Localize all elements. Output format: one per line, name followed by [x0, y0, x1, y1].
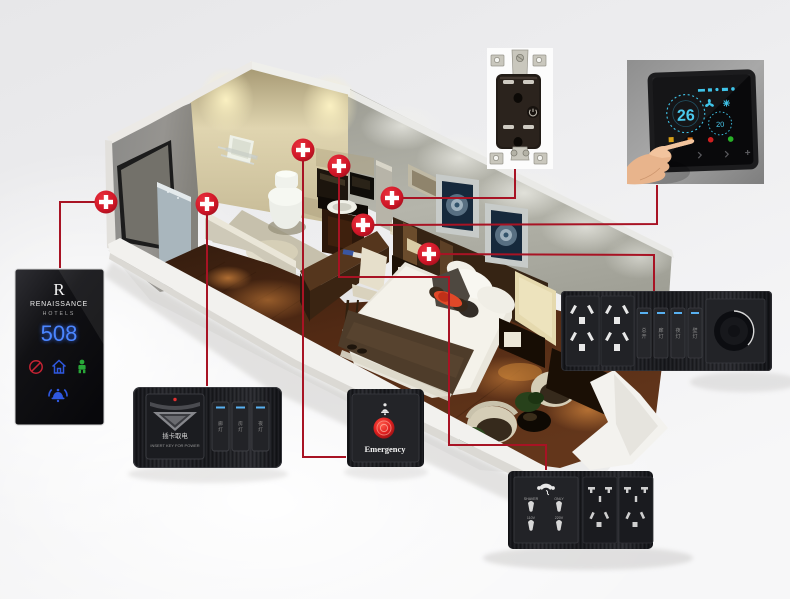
- svg-text:开: 开: [641, 334, 646, 340]
- svg-text:ONLY: ONLY: [554, 497, 564, 501]
- svg-text:26: 26: [677, 107, 695, 125]
- svg-text:220V: 220V: [555, 516, 564, 520]
- svg-text:RENAISSANCE: RENAISSANCE: [30, 301, 88, 308]
- svg-text:508: 508: [41, 321, 78, 346]
- svg-text:插卡取电: 插卡取电: [162, 431, 188, 440]
- svg-text:Emergency: Emergency: [364, 444, 406, 454]
- svg-text:壁: 壁: [692, 327, 697, 334]
- svg-text:夜: 夜: [675, 327, 680, 334]
- svg-text:总: 总: [641, 327, 646, 334]
- svg-text:灯: 灯: [675, 333, 680, 340]
- svg-text:廊: 廊: [658, 327, 663, 334]
- svg-text:灯: 灯: [258, 426, 263, 433]
- svg-text:SHAVER: SHAVER: [524, 497, 539, 501]
- svg-text:110V: 110V: [527, 516, 536, 520]
- svg-text:HOTELS: HOTELS: [43, 311, 76, 317]
- svg-text:INSERT KEY FOR POWER: INSERT KEY FOR POWER: [150, 443, 199, 448]
- svg-text:灯: 灯: [692, 333, 697, 340]
- svg-text:灯: 灯: [218, 426, 223, 433]
- svg-text:20: 20: [716, 120, 725, 129]
- svg-text:R: R: [53, 280, 65, 299]
- svg-text:灯: 灯: [658, 333, 663, 340]
- svg-text:灯: 灯: [238, 426, 243, 433]
- svg-text:廊: 廊: [218, 420, 223, 427]
- svg-text:房: 房: [238, 420, 243, 427]
- svg-text:夜: 夜: [258, 420, 263, 427]
